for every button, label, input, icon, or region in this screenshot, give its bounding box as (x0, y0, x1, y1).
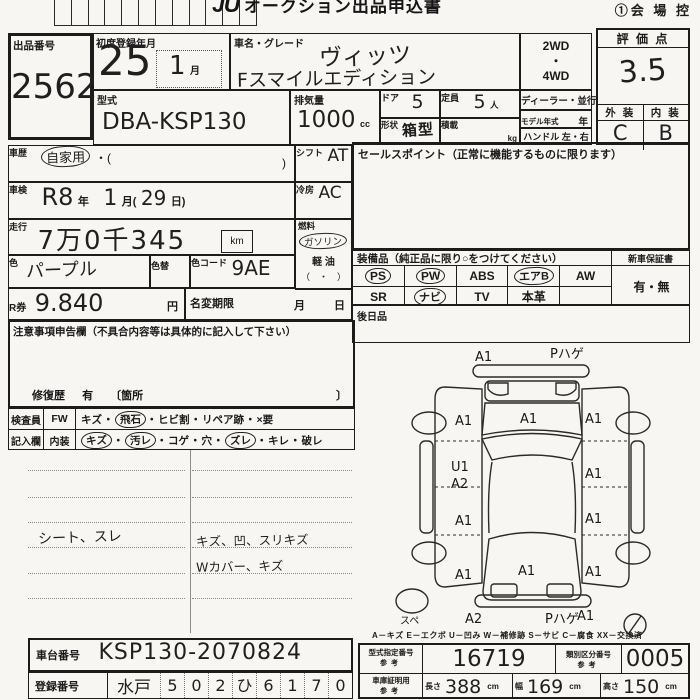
color-change-box: 色替 (150, 255, 190, 288)
model-year-unit: 年 (578, 114, 588, 128)
inspection-era: R8 (41, 183, 73, 211)
inspector-table: 検査員 FW キズ・飛石・ヒビ割・リペア跡・×要 記入欄 内装 キズ・汚レ・コゲ… (8, 408, 355, 450)
inspection-day: 29 (141, 186, 166, 210)
month-unit: 月 (190, 66, 200, 77)
notes-box: 注意事項申告欄（不具合内容等は具体的に記入して下さい） 修復歴 有 〔箇所 〕 (8, 320, 355, 408)
first-registration-box: 初度登録年月 25 1 月 (93, 33, 230, 90)
damage-left-door-1: U1 (451, 460, 469, 475)
ju-logo: JU (212, 0, 239, 15)
damage-front-bumper-left: A1 (475, 350, 492, 365)
wheel-front-right (616, 412, 650, 434)
circled-item: キズ (81, 431, 113, 449)
memo-line (28, 497, 185, 498)
inspection-day-unit: 日) (171, 196, 186, 208)
windshield (482, 434, 582, 461)
lot-number-label: 出品番号 (11, 36, 90, 53)
history-label: 車歴 (9, 148, 27, 158)
drive-2wd: 2WD (521, 39, 591, 54)
rating-box: 評 価 点 3.5 外 装 内 装 C B (596, 28, 690, 145)
equipment-table: 装備品（純正品に限り○をつけてください） 新車保証書 PS PW ABS エアB… (352, 250, 690, 305)
reference-row2: 車庫証明用 参考 長さ 388 cm 幅 169 cm 高さ 150 cm (360, 674, 688, 699)
inspector-fw-label: FW (43, 409, 75, 429)
lot-number-value: 2562 (11, 67, 90, 107)
ticket-unit: 円 (167, 298, 178, 314)
capacity-box: 定員 5 人 (440, 90, 520, 118)
damage-rear-fender-left: A1 (455, 568, 472, 583)
name-change-label: 名変期限 (186, 298, 234, 310)
fuel-other: （ ・ ） (296, 270, 351, 283)
circled-item: 汚レ (124, 431, 156, 449)
wheel-rear-left (412, 542, 446, 564)
dealer-box: ディーラー・並行 (520, 90, 592, 110)
memo-divider (190, 450, 191, 633)
drive-box: 2WD ・ 4WD (520, 33, 592, 90)
ticket-value: 9.840 (35, 289, 104, 317)
fuel-diesel: 軽 油 (296, 253, 351, 268)
fuel-label: 燃料 (296, 220, 351, 232)
inspection-label: 車検 (9, 185, 27, 195)
damage-rear-fender-right: A1 (585, 565, 602, 580)
front-bumper (473, 365, 589, 377)
inspection-box: 車検 R8 年 1 月( 29 日) (8, 182, 295, 219)
sales-point-label: セールスポイント（正常に機能するものに限ります） (354, 144, 688, 162)
wheel-front-left (412, 412, 446, 434)
vehicle-name-box: 車名・グレード ヴィッツ Fスマイルエディション (230, 33, 520, 90)
capacity-unit: 人 (490, 100, 499, 110)
damage-left-rear-door: A1 (455, 514, 472, 529)
equipment-row1: PS PW ABS エアB AW (353, 266, 611, 286)
shape-label: 形状 (381, 120, 398, 130)
cabin-left-line (488, 462, 492, 533)
headlight-left (488, 383, 508, 395)
garage-length: 長さ 388 cm (422, 674, 512, 699)
class-number-labels: 類別区分番号 参考 (555, 645, 621, 673)
aircon-value: AC (318, 183, 341, 203)
color-code-box: 色コード 9AE (190, 255, 295, 288)
registration-label: 登録番号 (29, 678, 107, 694)
circled-item: 飛石 (114, 410, 146, 428)
front-panel (485, 381, 579, 401)
damage-hood: A1 (520, 412, 537, 427)
damage-front-fender-left: A1 (455, 414, 472, 429)
rating-sub-header: 外 装 内 装 (598, 104, 688, 121)
damage-right-rear-door: A1 (585, 512, 602, 527)
notes-header: 注意事項申告欄（不具合内容等は具体的に記入して下さい） (10, 322, 353, 339)
inspector-fw-items: キズ・飛石・ヒビ割・リペア跡・×要 (75, 409, 354, 429)
lot-number-box: 出品番号 2562 (8, 33, 93, 140)
displacement-box: 排気量 1000 cc (290, 90, 380, 145)
color-value: パープル (26, 255, 98, 283)
color-code-value: 9AE (231, 256, 270, 280)
inspector-row-interior: 記入欄 内装 キズ・汚レ・コゲ・穴・ズレ・キレ・破レ (9, 430, 354, 450)
model-code-label: 型式 (94, 91, 289, 107)
model-year-box: モデル年式 年 (520, 110, 592, 128)
mileage-unit-box: km (221, 230, 253, 253)
history-value: 自家用 (41, 145, 91, 168)
auction-sheet: JU オークション出品申込書 ①会 場 控 出品番号 2562 初度登録年月 2… (0, 0, 700, 700)
garage-height: 高さ 150 cm (600, 674, 688, 699)
aircon-box: 冷房 AC (295, 182, 352, 219)
memo-line (28, 573, 185, 574)
damage-front-fender-right: A1 (585, 412, 602, 427)
doors-box: ドア 5 (380, 90, 440, 118)
drive-dot: ・ (521, 54, 591, 69)
circled-item: ズレ (224, 431, 256, 449)
spare-label: スペ (400, 616, 419, 627)
sales-point-box: セールスポイント（正常に機能するものに限ります） (352, 142, 690, 250)
mileage-box: 走行 7万0千345 km (8, 219, 295, 255)
copy-label: ①会 場 控 (615, 0, 692, 19)
color-change-label: 色替 (151, 261, 169, 271)
type-number-labels: 型式指定番号 参考 (360, 645, 422, 673)
name-change-box: 名変期限 月 日 (185, 288, 352, 320)
repair-value: 有 (82, 390, 93, 402)
chassis-label: 車台番号 (30, 650, 80, 662)
damage-legend: A－キズ E－エクボ U－凹み W－補修跡 S－サビ C－腐食 XX－交換済 (372, 630, 643, 641)
first-registration-year: 25 (98, 36, 151, 85)
form-title-text: オークション出品申込書 (244, 0, 442, 15)
inspector-col-label2: 記入欄 (9, 433, 43, 448)
damage-right-front-door: A1 (585, 467, 602, 482)
mileage-value: 7万0千345 (37, 226, 186, 256)
repair-label: 修復歴 (32, 390, 65, 402)
name-change-month: 月 (294, 297, 305, 313)
form-title: JU オークション出品申込書 (212, 0, 602, 15)
shift-value: AT (327, 146, 348, 166)
shift-label: シフト (296, 148, 323, 158)
inspector-col-label1: 検査員 (9, 412, 43, 427)
memo-note-left: シート、スレ (38, 526, 122, 549)
vehicle-name-line2: Fスマイルエディション (237, 62, 436, 92)
left-door-strip (420, 441, 433, 533)
capacity-label: 定員 (441, 93, 459, 103)
handle-label: ハンドル 左・右 (521, 129, 591, 143)
type-number-value: 16719 (422, 645, 555, 673)
memo-line (192, 598, 352, 599)
model-year-label: モデル年式 (521, 117, 559, 126)
displacement-unit: cc (360, 119, 370, 129)
model-code-box: 型式 DBA-KSP130 (93, 90, 290, 145)
displacement-label: 排気量 (291, 91, 379, 107)
rating-score: 3.5 (596, 45, 690, 107)
reference-row1: 型式指定番号 参考 16719 類別区分番号 参考 0005 (360, 645, 688, 674)
form-title-clip: JU オークション出品申込書 (212, 0, 602, 15)
model-code-value: DBA-KSP130 (94, 107, 289, 135)
color-box: 色 パープル (8, 255, 150, 288)
ticket-box: R券 9.840 円 (8, 288, 185, 320)
spare-tire (396, 589, 428, 613)
warranty-value: 有・無 (611, 266, 691, 306)
car-damage-diagram: A1 Pハゲ A1 A1 A1 U1 A2 A1 A1 A1 A1 A1 A1 … (385, 343, 690, 643)
class-number-value: 0005 (621, 645, 688, 673)
later-items-label: 後日品 (353, 306, 689, 323)
shift-box: シフト AT (295, 145, 352, 182)
drive-4wd: 4WD (521, 69, 591, 84)
repair-close: 〕 (336, 387, 347, 403)
inspector-row-fw: 検査員 FW キズ・飛石・ヒビ割・リペア跡・×要 (9, 409, 354, 430)
damage-rear-bumper-right: A1 (577, 609, 594, 624)
registration-region: 水戸 (107, 673, 160, 698)
warranty-label: 新車保証書 (611, 251, 689, 266)
damage-rear-bumper-left: A2 (465, 612, 482, 627)
first-registration-month: 1 (169, 51, 186, 81)
repair-bracket: 〔箇所 (110, 390, 143, 402)
damage-front-bumper-right: Pハゲ (550, 347, 584, 362)
history-paren-close: ) (282, 156, 286, 170)
registration-digits: 5 0 2 ひ 6 1 7 0 (160, 673, 352, 698)
equipment-header: 装備品（純正品に限り○をつけてください） (353, 251, 611, 266)
damage-left-door-2: A2 (451, 477, 468, 492)
color-code-label: 色コード (191, 258, 227, 268)
fuel-gasoline: ガソリン (299, 232, 348, 250)
wheel-rear-right (616, 542, 650, 564)
inspection-month: 1 (103, 186, 117, 211)
cabin-right-line (572, 462, 576, 533)
memo-line (28, 598, 185, 599)
memo-note-right2: Wカバー、キズ (196, 555, 284, 576)
later-items-box: 後日品 (352, 305, 690, 343)
inspection-month-unit: 月( (122, 196, 137, 208)
headlight-right (556, 383, 576, 395)
mileage-label: 走行 (9, 222, 27, 232)
history-paren-open: ・( (95, 151, 111, 165)
load-label: 積載 (441, 120, 458, 130)
color-label: 色 (9, 258, 18, 268)
load-box: 積載 kg (440, 118, 520, 145)
equipment-header-row: 装備品（純正品に限り○をつけてください） 新車保証書 (353, 251, 689, 266)
history-box: 車歴 自家用 ・( ) (8, 145, 295, 182)
first-registration-month-box: 1 月 (156, 50, 222, 88)
right-door-strip (631, 441, 644, 533)
equipment-row2: SR ナビ TV 本革 (353, 286, 611, 306)
reference-table: 型式指定番号 参考 16719 類別区分番号 参考 0005 車庫証明用 参考 … (358, 643, 690, 699)
doors-value: 5 (411, 91, 423, 113)
ticket-label: R券 (9, 303, 26, 314)
fuel-box: 燃料 ガソリン 軽 油 （ ・ ） (295, 219, 352, 290)
displacement-value: 1000 (297, 107, 356, 133)
memo-line (192, 470, 352, 471)
registration-box: 登録番号 水戸 5 0 2 ひ 6 1 7 0 (28, 672, 353, 699)
memo-line (28, 522, 185, 523)
damage-trunk: A1 (518, 564, 535, 579)
memo-line (192, 522, 352, 523)
shape-box: 形状 箱型 (380, 118, 440, 145)
garage-width: 幅 169 cm (512, 674, 600, 699)
aircon-label: 冷房 (296, 185, 314, 195)
name-change-day: 日 (334, 297, 345, 313)
inspector-interior-label: 内装 (43, 430, 75, 450)
memo-line (192, 497, 352, 498)
interior-label: 内 装 (643, 105, 689, 120)
damage-rear-bumper-center: Pハゲ (545, 612, 579, 627)
garage-labels: 車庫証明用 参考 (360, 674, 422, 699)
memo-line (28, 470, 185, 471)
chassis-box: 車台番号 KSP130-2070824 (28, 638, 353, 672)
chassis-value: KSP130-2070824 (98, 640, 302, 665)
repair-history-line: 修復歴 有 〔箇所 (32, 387, 143, 403)
memo-note-right1: キズ、凹、スリキズ (196, 529, 309, 550)
dealer-label: ディーラー・並行 (521, 91, 591, 107)
inspector-interior-items: キズ・汚レ・コゲ・穴・ズレ・キレ・破レ (75, 430, 354, 450)
doors-label: ドア (381, 93, 399, 103)
exterior-label: 外 装 (598, 105, 643, 120)
capacity-value: 5 (473, 91, 485, 113)
shape-stamp: 箱型 (402, 118, 435, 141)
inspection-year-unit: 年 (78, 196, 89, 208)
